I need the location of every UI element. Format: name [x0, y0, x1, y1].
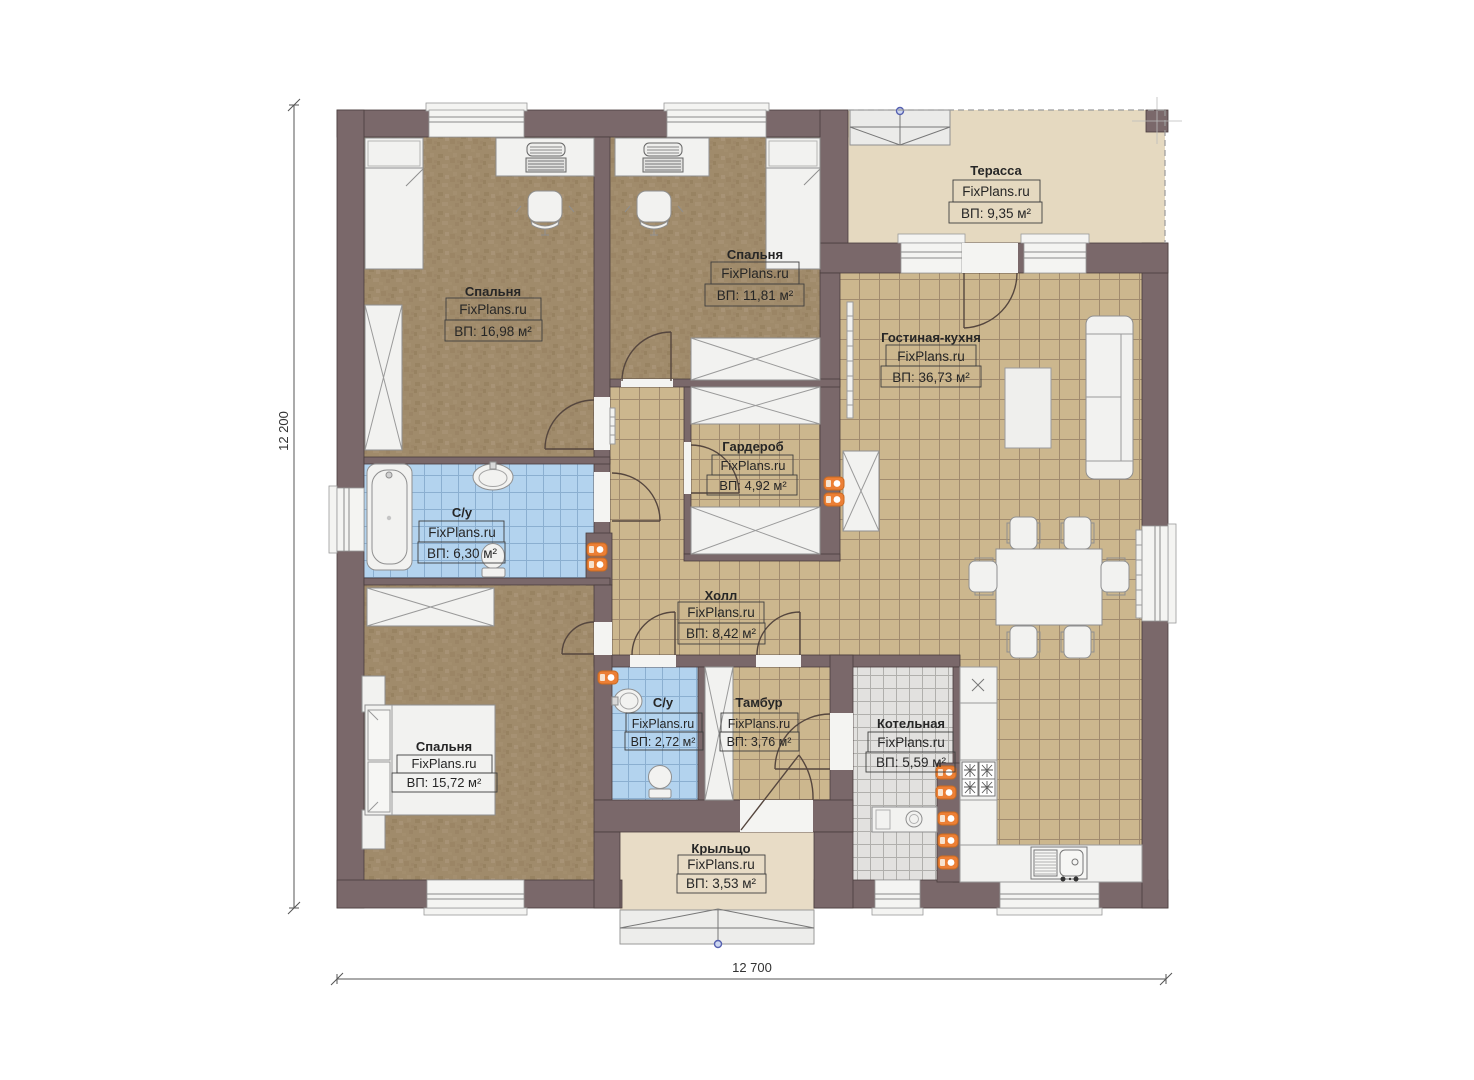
svg-text:FixPlans.ru: FixPlans.ru [962, 184, 1030, 199]
svg-text:ВП: 2,72 м²: ВП: 2,72 м² [631, 735, 696, 749]
svg-text:Котельная: Котельная [877, 716, 945, 731]
svg-text:С/у: С/у [653, 695, 674, 710]
svg-text:12 700: 12 700 [732, 960, 772, 975]
svg-text:FixPlans.ru: FixPlans.ru [728, 717, 791, 731]
svg-text:Тамбур: Тамбур [735, 695, 782, 710]
svg-text:ВП: 5,59 м²: ВП: 5,59 м² [876, 755, 947, 770]
svg-text:ВП: 9,35 м²: ВП: 9,35 м² [961, 206, 1032, 221]
svg-text:ВП: 8,42 м²: ВП: 8,42 м² [686, 626, 757, 641]
svg-text:FixPlans.ru: FixPlans.ru [428, 525, 496, 540]
svg-text:FixPlans.ru: FixPlans.ru [687, 605, 755, 620]
svg-text:ВП: 11,81 м²: ВП: 11,81 м² [717, 288, 794, 303]
svg-text:Спальня: Спальня [416, 739, 472, 754]
svg-text:ВП: 6,30 м²: ВП: 6,30 м² [427, 546, 498, 561]
svg-text:ВП: 3,53 м²: ВП: 3,53 м² [686, 876, 757, 891]
svg-text:ВП: 36,73 м²: ВП: 36,73 м² [892, 370, 970, 385]
svg-text:С/у: С/у [452, 505, 473, 520]
svg-text:ВП: 15,72 м²: ВП: 15,72 м² [407, 775, 482, 790]
svg-text:Спальня: Спальня [727, 247, 783, 262]
svg-text:FixPlans.ru: FixPlans.ru [632, 717, 695, 731]
svg-text:Холл: Холл [705, 588, 738, 603]
svg-text:FixPlans.ru: FixPlans.ru [721, 266, 789, 281]
svg-text:FixPlans.ru: FixPlans.ru [411, 756, 476, 771]
svg-text:FixPlans.ru: FixPlans.ru [897, 349, 965, 364]
svg-text:12 200: 12 200 [276, 411, 291, 451]
svg-text:Терасса: Терасса [970, 163, 1022, 178]
svg-text:FixPlans.ru: FixPlans.ru [720, 458, 785, 473]
svg-text:FixPlans.ru: FixPlans.ru [687, 857, 755, 872]
svg-text:FixPlans.ru: FixPlans.ru [877, 735, 945, 750]
svg-text:ВП: 3,76 м²: ВП: 3,76 м² [727, 735, 792, 749]
svg-text:ВП: 4,92 м²: ВП: 4,92 м² [719, 478, 787, 493]
svg-text:FixPlans.ru: FixPlans.ru [459, 302, 527, 317]
svg-text:Гостиная-кухня: Гостиная-кухня [881, 330, 981, 345]
svg-text:Гардероб: Гардероб [722, 439, 783, 454]
svg-text:Крыльцо: Крыльцо [691, 841, 750, 856]
svg-text:ВП: 16,98 м²: ВП: 16,98 м² [454, 324, 532, 339]
svg-text:Спальня: Спальня [465, 284, 521, 299]
